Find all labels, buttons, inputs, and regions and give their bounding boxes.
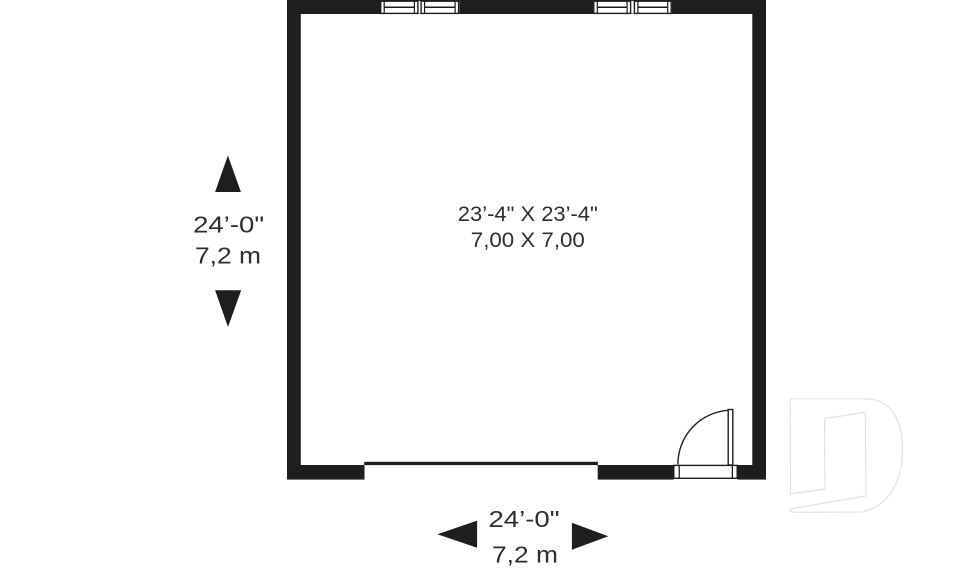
svg-text:7,2 m: 7,2 m xyxy=(492,541,558,567)
svg-text:23’-4" X 23’-4": 23’-4" X 23’-4" xyxy=(458,203,598,226)
svg-text:24’-0": 24’-0" xyxy=(193,212,264,238)
svg-text:24’-0": 24’-0" xyxy=(489,506,560,532)
svg-text:7,2 m: 7,2 m xyxy=(195,242,261,268)
svg-text:7,00 X 7,00: 7,00 X 7,00 xyxy=(471,229,585,252)
